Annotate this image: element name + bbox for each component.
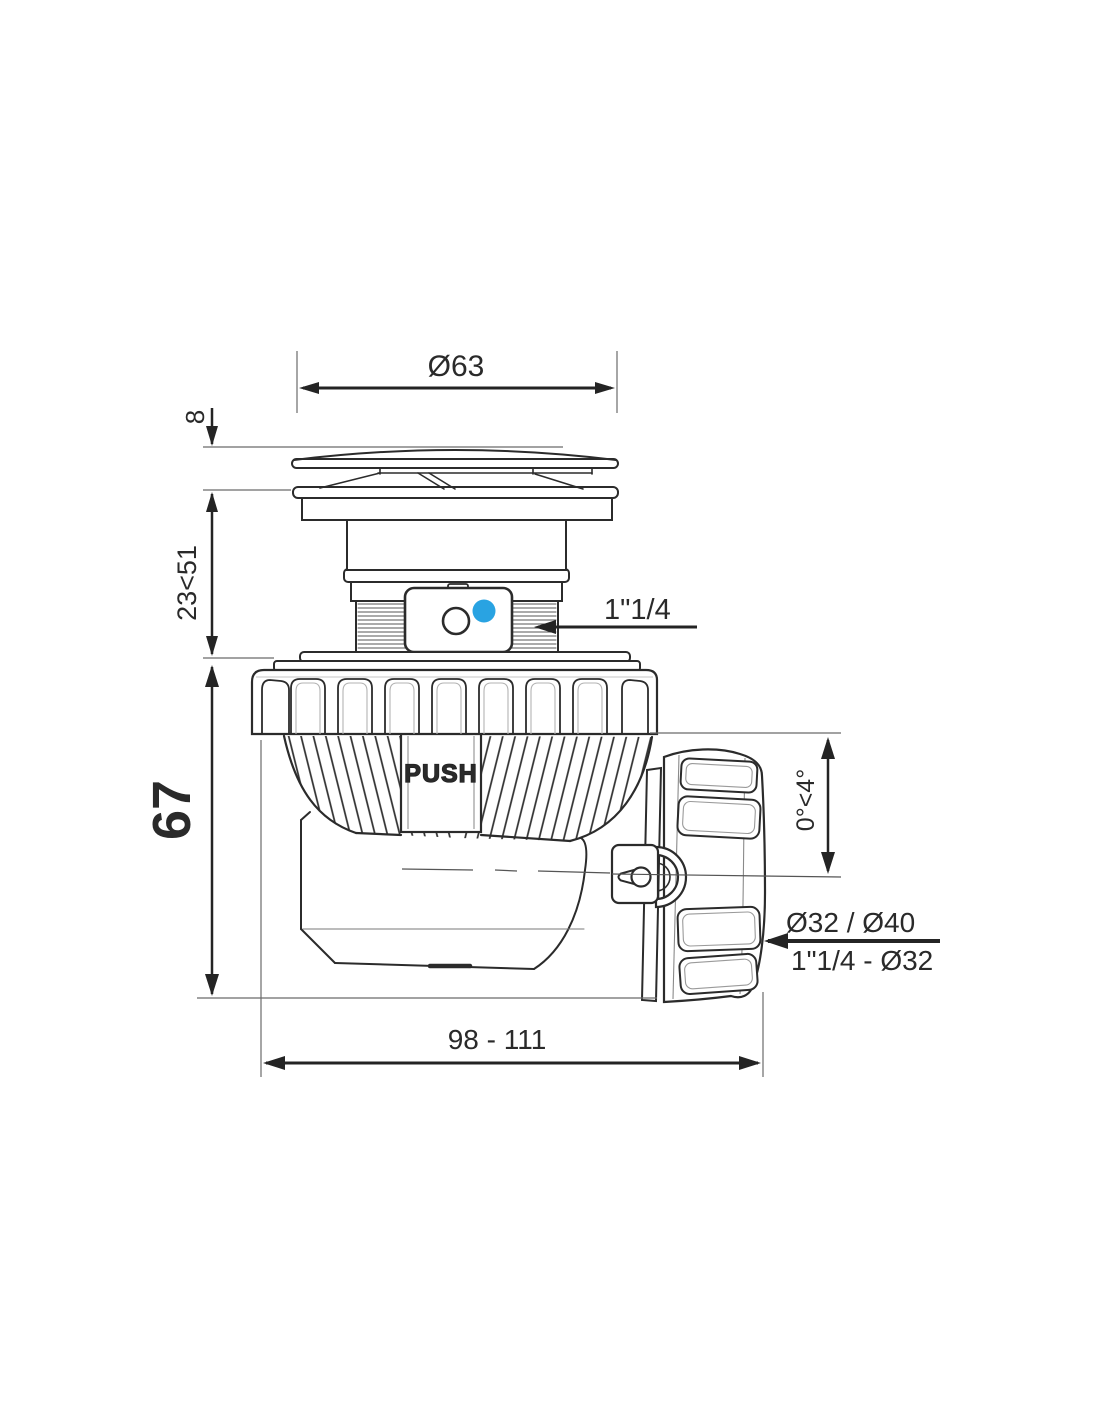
outlet-adapters-label: 1"1/4 - Ø32	[791, 945, 933, 976]
flange-band	[302, 497, 612, 520]
blue-indicator-dot	[473, 600, 496, 623]
white-indicator-dot	[443, 608, 469, 634]
cap-height-label: 8	[180, 410, 210, 424]
ring-nut	[252, 652, 657, 734]
technical-drawing: PUSH	[0, 0, 1100, 1422]
control-plate	[405, 584, 512, 655]
overall-length-label: 98 - 111	[448, 1024, 547, 1055]
dim-outlet-connection: Ø32 / Ø40 1"1/4 - Ø32	[764, 907, 940, 976]
install-height-label: 23<51	[172, 545, 202, 621]
keyhole-circle	[632, 868, 651, 887]
drawing-canvas: PUSH	[0, 0, 1100, 1422]
push-tab: PUSH	[401, 733, 481, 832]
cap-diameter-label: Ø63	[428, 350, 485, 383]
outlet-angle-label: 0°<4°	[792, 769, 820, 831]
push-marking-label: PUSH	[404, 760, 477, 788]
body-height-label: 67	[142, 780, 202, 840]
outlet-diameters-label: Ø32 / Ø40	[786, 907, 915, 938]
inlet-thread-label: 1"1/4	[604, 594, 671, 626]
upper-cylinder	[347, 520, 566, 570]
